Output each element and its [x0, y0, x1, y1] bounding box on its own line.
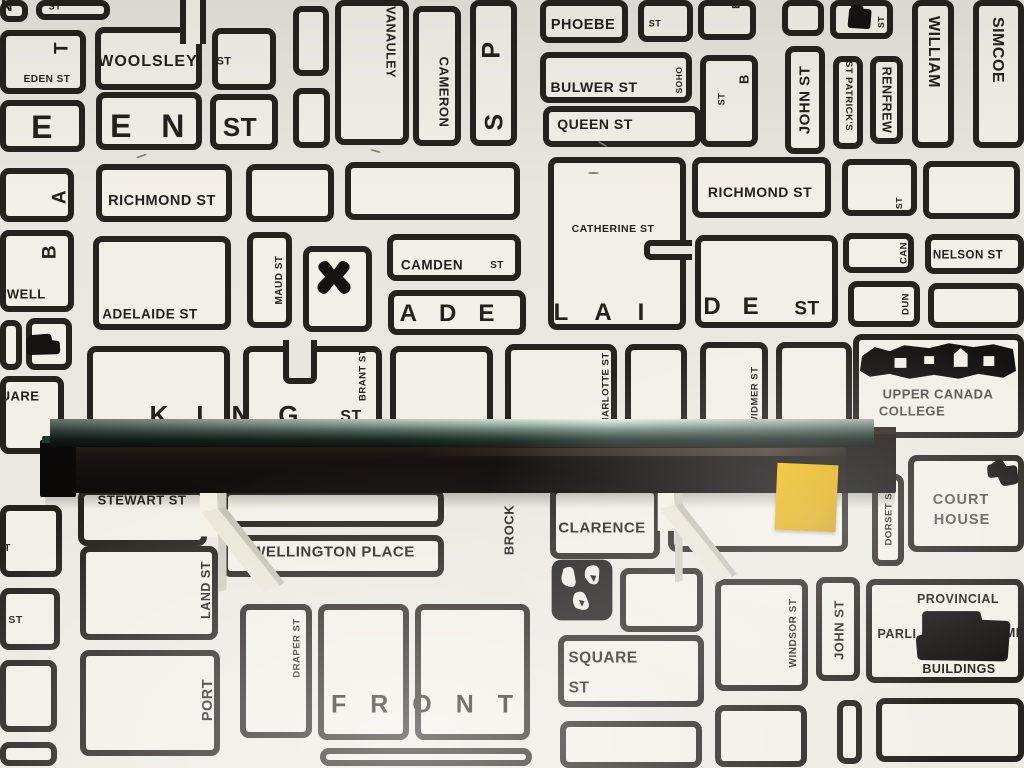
street-label-e: E [110, 110, 132, 142]
street-label-catherine-st: CATHERINE ST [572, 224, 655, 235]
glass-shelf [50, 419, 874, 447]
street-label-soho: SOHO [675, 66, 684, 93]
street-label-uare: UARE [1, 390, 40, 403]
photo-of-map-mural-with-shelf: NSTTEDEN STWOOLSLEYSTEENSTABOWELLUAREVAN… [0, 0, 1024, 768]
street-label-renfrew: RENFREW [880, 67, 893, 134]
street-label-house: HOUSE [934, 513, 991, 528]
street-label-square: SQUARE [568, 650, 637, 666]
map-block [0, 505, 62, 577]
map-block [36, 0, 110, 20]
street-label-provincial: PROVINCIAL [917, 593, 999, 606]
street-label-phoebe: PHOEBE [551, 18, 615, 33]
street-label-woolsley: WOOLSLEY [98, 54, 198, 70]
street-label-st: ST [223, 114, 257, 140]
truck-icon [25, 328, 65, 358]
street-label-st: ST [718, 93, 727, 106]
map-block [293, 88, 330, 148]
street-label-st: ST [895, 197, 904, 209]
shelf-bracket-right [656, 484, 742, 588]
street-label-can: CAN [899, 242, 909, 264]
street-label-owell: OWELL [0, 288, 46, 301]
pen-mark [136, 153, 147, 159]
shelf-bracket-left [198, 486, 290, 598]
street-label-port: PORT [201, 679, 216, 721]
map-block [700, 55, 758, 147]
street-label-e: E [31, 111, 53, 143]
street-label-eden-st: EDEN ST [24, 75, 71, 85]
map-block [698, 0, 756, 40]
street-label-maud-st: MAUD ST [275, 255, 285, 304]
building-blob-icon [841, 4, 875, 36]
street-label-john-st: JOHN ST [833, 600, 846, 660]
street-map-mural: NSTTEDEN STWOOLSLEYSTEENSTABOWELLUAREVAN… [0, 0, 1024, 768]
shelf-shadow [45, 491, 895, 509]
street-label-st: ST [877, 16, 886, 28]
map-block [0, 660, 57, 732]
campus-building-icon [860, 341, 1018, 381]
map-block [842, 159, 917, 216]
street-label-st: ST [0, 544, 11, 554]
street-label-draper-st: DRAPER ST [292, 618, 302, 677]
map-block [837, 700, 862, 764]
street-label-clarence: CLARENCE [558, 521, 645, 536]
street-label-bulwer-st: BULWER ST [551, 80, 638, 94]
map-street-notch [283, 340, 317, 384]
map-street-notch [180, 0, 206, 44]
face-icon [551, 558, 613, 622]
street-label-upper-canada: UPPER CANADA [883, 388, 994, 401]
street-label-p: P [480, 41, 505, 58]
street-label-richmond-st: RICHMOND ST [708, 185, 812, 199]
street-label-parli: PARLI [877, 628, 916, 641]
map-block [0, 320, 22, 370]
street-label-n: N [1, 0, 13, 15]
map-block [246, 164, 334, 222]
street-label-dun: DUN [901, 293, 911, 315]
street-label-brock: BROCK [503, 505, 516, 555]
map-block [335, 0, 409, 145]
street-label-simcoe: SIMCOE [989, 17, 1005, 83]
street-label-ade: ADE [400, 302, 517, 326]
courthouse-icon [984, 453, 1024, 505]
map-block [876, 698, 1024, 762]
parliament-building-icon [916, 606, 1014, 664]
street-label-t: T [53, 42, 72, 54]
street-label-front: FRONT [331, 693, 537, 718]
street-label-b: B [738, 74, 751, 84]
map-block [318, 604, 409, 740]
map-block [293, 6, 329, 76]
street-label-queen-st: QUEEN ST [557, 117, 633, 131]
map-street-notch [644, 240, 692, 260]
street-label-st: ST [569, 680, 590, 696]
street-label-court: COURT [933, 493, 990, 508]
map-block [247, 232, 292, 328]
street-label-vanauley: VANAULEY [384, 6, 397, 78]
map-block [540, 52, 692, 103]
street-label-de: DE [703, 295, 780, 319]
map-block [560, 721, 702, 768]
street-label-college: COLLEGE [879, 405, 945, 418]
street-label-st-patrick-s: ST PATRICK'S [843, 61, 853, 131]
pen-mark [588, 172, 599, 174]
street-label-n: N [161, 110, 185, 142]
street-label-st: ST [216, 57, 231, 68]
shelf-end-cap-left [40, 440, 76, 497]
street-label-camden: CAMDEN [401, 258, 463, 272]
map-block [0, 742, 57, 766]
map-block [928, 283, 1024, 328]
map-block [715, 705, 807, 767]
wood-shelf [40, 445, 896, 493]
street-label-nelson-st: NELSON ST [933, 250, 1003, 262]
street-label-a: A [51, 190, 70, 204]
street-label-e: E [732, 1, 743, 9]
street-label-a-st: A ST [0, 615, 23, 626]
street-label-buildings: BUILDINGS [922, 663, 995, 676]
street-label-richmond-st: RICHMOND ST [108, 194, 216, 209]
street-label-s: S [483, 113, 508, 130]
map-block [923, 161, 1020, 219]
street-label-brant-st: BRANT ST [358, 349, 368, 401]
street-label-st: ST [794, 300, 819, 319]
street-label-b: B [41, 245, 60, 259]
map-block [345, 162, 520, 220]
street-label-lai: LAI [554, 301, 671, 325]
map-block [415, 604, 530, 740]
street-label-adelaide-st: ADELAIDE ST [102, 307, 198, 321]
street-label-william: WILLIAM [925, 16, 941, 88]
map-block [782, 0, 824, 36]
map-block [320, 748, 532, 766]
pen-mark [370, 149, 381, 154]
street-label-windsor-st: WINDSOR ST [789, 599, 799, 668]
street-label-st: ST [649, 20, 662, 29]
splat-icon [314, 258, 354, 302]
sticky-note [775, 463, 839, 533]
street-label-widmer-st: WIDMER ST [750, 367, 760, 426]
street-label-cameron: CAMERON [438, 57, 451, 128]
map-block [638, 0, 693, 42]
street-label-st: ST [490, 261, 504, 271]
street-label-st: ST [49, 3, 62, 12]
street-label-john-st: JOHN ST [798, 66, 813, 135]
